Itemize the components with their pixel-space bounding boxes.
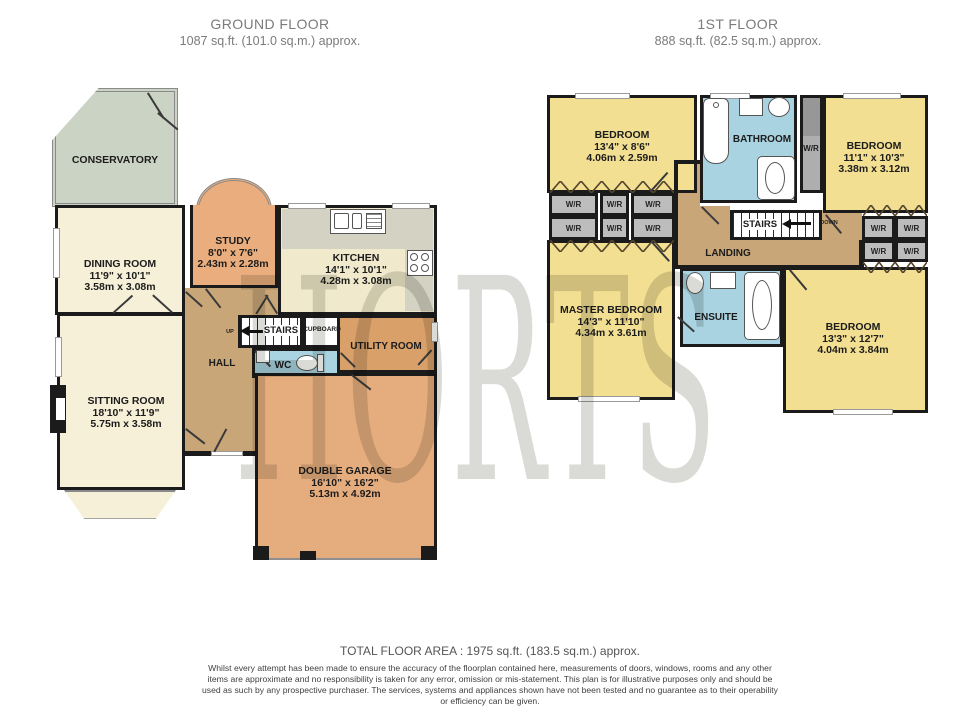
garage-pillar-left [253, 546, 269, 560]
bathroom-shower-base [765, 162, 785, 194]
stairs-down-arrow-head [782, 219, 791, 229]
dining-label: DINING ROOM 11'9" x 10'1" 3.58m x 3.08m [84, 259, 156, 294]
utility-window [431, 322, 438, 342]
disclaimer-text: Whilst every attempt has been made to en… [198, 663, 782, 707]
dining-window [53, 228, 60, 278]
wc-toilet-tank [317, 354, 324, 372]
master-window [578, 396, 640, 402]
sitting-bay-window [64, 490, 176, 520]
ensuite-toilet-icon [686, 272, 704, 294]
kitchen-drainer [366, 213, 382, 229]
kitchen-sink-basin1 [334, 213, 349, 229]
bedroom1-label: BEDROOM 13'4" x 8'6" 4.06m x 2.59m [586, 130, 657, 165]
bedroom2-label: BEDROOM 11'1" x 10'3" 3.38m x 3.12m [838, 141, 909, 176]
hob-ring-4 [421, 264, 429, 272]
garage-pillar-right [421, 546, 437, 560]
hall-label: HALL [209, 358, 236, 369]
hob-ring-2 [421, 253, 429, 261]
ground-floor-header: GROUND FLOOR 1087 sq.ft. (101.0 sq.m.) a… [120, 16, 420, 48]
first-floor-title: 1ST FLOOR [588, 16, 888, 32]
bifold-doors-right-top [863, 205, 927, 216]
wardrobe-cell: W/R [862, 216, 895, 240]
ensuite-sink-icon [710, 272, 736, 289]
conservatory-label: CONSERVATORY [72, 155, 158, 167]
sitting-window [55, 337, 62, 377]
wardrobe-cell: W/R [549, 216, 598, 240]
landing-top-wall [674, 160, 702, 164]
stairs-up-label: UP [226, 329, 234, 335]
front-door-opening [211, 451, 243, 456]
bathroom-label: BATHROOM [733, 134, 791, 145]
room-conservatory [52, 88, 178, 207]
wardrobe-cell: W/R [895, 240, 928, 262]
total-floor-area: TOTAL FLOOR AREA : 1975 sq.ft. (183.5 sq… [0, 644, 980, 658]
ground-floor-title: GROUND FLOOR [120, 16, 420, 32]
bathroom-toilet-icon [768, 97, 790, 117]
kitchen-window-2 [392, 203, 430, 209]
stairs-down-label: DOWN [820, 220, 837, 226]
wardrobe-cell: W/R [862, 240, 895, 262]
wardrobe-strip-label: W/R [803, 144, 819, 153]
stairs-ground-label: STAIRS [263, 325, 299, 336]
wardrobe-cell: W/R [600, 216, 629, 240]
fireplace-recess [56, 398, 65, 420]
wc-toilet-bowl [296, 355, 318, 371]
bathroom-sink-icon [739, 98, 763, 116]
landing-label: LANDING [705, 248, 751, 259]
stairs-first-label: STAIRS [742, 219, 778, 230]
cupboard-label: CUPBOARD [303, 326, 341, 333]
kitchen-window-1 [288, 203, 326, 209]
stairs-up-arrow-head [240, 326, 249, 336]
stairs-up-arrow-shaft [247, 330, 264, 333]
wardrobe-cell: W/R [631, 216, 675, 240]
study-label: STUDY 8'0" x 7'6" 2.43m x 2.28m [197, 236, 268, 271]
utility-label: UTILITY ROOM [350, 341, 421, 352]
bedroom3-window [833, 409, 893, 415]
garage-label: DOUBLE GARAGE 16'10" x 16'2" 5.13m x 4.9… [298, 466, 391, 501]
landing-left-wall [674, 160, 678, 268]
ensuite-shower-base [752, 280, 772, 330]
first-floor-area: 888 sq.ft. (82.5 sq.m.) approx. [588, 34, 888, 48]
wardrobe-cell: W/R [895, 216, 928, 240]
ensuite-label: ENSUITE [694, 312, 737, 323]
ground-floor-area: 1087 sq.ft. (101.0 sq.m.) approx. [120, 34, 420, 48]
bath-tap [713, 102, 719, 108]
hob-ring-1 [410, 253, 418, 261]
wc-sink-icon [256, 350, 270, 363]
bedroom1-window [575, 93, 630, 99]
master-label: MASTER BEDROOM 14'3" x 11'10" 4.34m x 3.… [560, 305, 662, 340]
bedroom3-label: BEDROOM 13'3" x 12'7" 4.04m x 3.84m [817, 322, 888, 357]
wardrobe-cell: W/R [631, 193, 675, 216]
wardrobe-strip-dark [803, 98, 820, 136]
sitting-label: SITTING ROOM 18'10" x 11'9" 5.75m x 3.58… [88, 396, 165, 431]
wc-label: WC [275, 360, 292, 371]
first-floor-header: 1ST FLOOR 888 sq.ft. (82.5 sq.m.) approx… [588, 16, 888, 48]
hob-ring-3 [410, 264, 418, 272]
landing-bottom-wall [674, 265, 864, 269]
kitchen-sink-basin2 [352, 213, 362, 229]
footer: TOTAL FLOOR AREA : 1975 sq.ft. (183.5 sq… [0, 644, 980, 710]
garage-pillar-center [300, 551, 316, 560]
kitchen-label: KITCHEN 14'1" x 10'1" 4.28m x 3.08m [320, 253, 391, 288]
floorplan-page: GROUND FLOOR 1087 sq.ft. (101.0 sq.m.) a… [0, 0, 980, 710]
bedroom2-window [843, 93, 901, 99]
wardrobe-cell: W/R [549, 193, 598, 216]
stairs-down-arrow-shaft [789, 222, 811, 225]
wardrobe-cell: W/R [600, 193, 629, 216]
bifold-doors-right-bottom [863, 262, 927, 273]
